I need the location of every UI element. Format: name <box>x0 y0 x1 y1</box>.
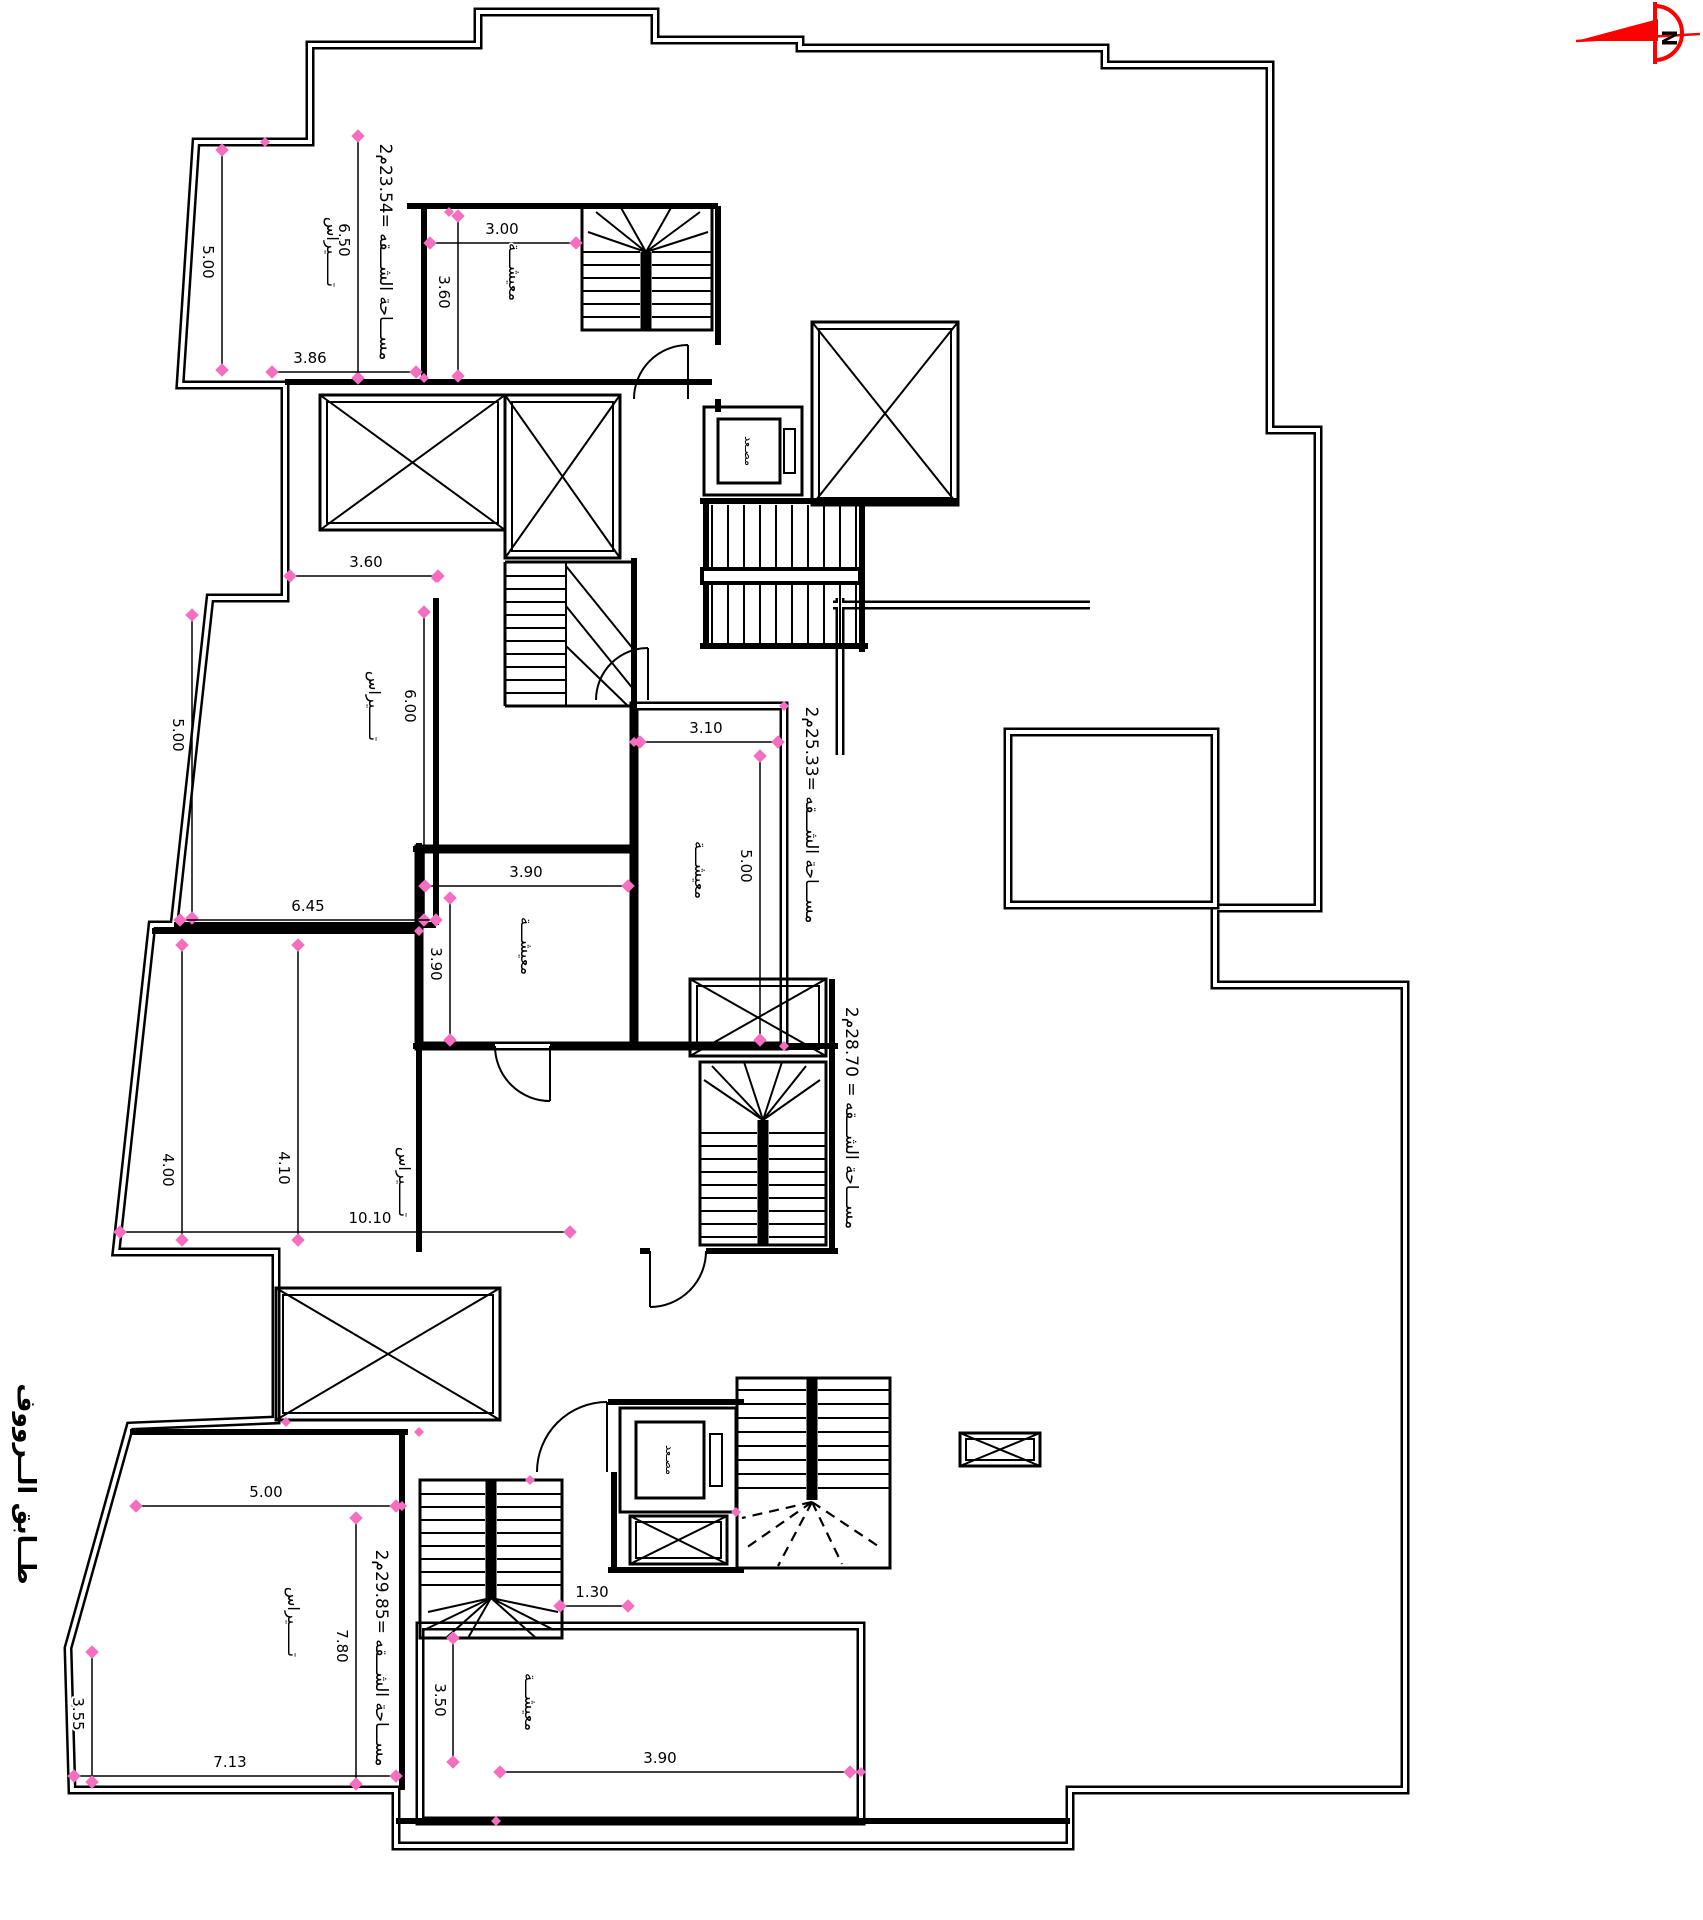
elevator-label: مصـعد <box>742 436 755 466</box>
shaft-box <box>960 1433 1040 1466</box>
terrace-label: تــــــيراس <box>394 1147 414 1217</box>
dimension-label: 5.00 <box>737 849 755 882</box>
area-label: مســـاحة الشـــقه =29.85م2 <box>371 1550 391 1767</box>
dimension-label: 6.00 <box>401 689 419 722</box>
interior-walls <box>130 206 1070 1821</box>
north-arrow-icon: N <box>1576 2 1700 64</box>
shaft-box <box>320 395 505 530</box>
shaft-box <box>276 1288 500 1420</box>
dimension-labels: 5.00 6.50 3.86 3.00 3.60 3.60 6.00 5.00 … <box>69 220 755 1771</box>
elevator-top: مصـعد <box>704 407 802 495</box>
floor-title: طــابق الــرووف <box>11 1383 41 1584</box>
dimension-label: 3.90 <box>509 863 542 881</box>
area-label: مســـاحة الشـــقه =23.54م2 <box>375 144 395 361</box>
dimension-label: 3.90 <box>643 1749 676 1767</box>
dimension-label: 4.10 <box>275 1151 293 1184</box>
living-label: معيشـــة <box>517 917 536 975</box>
dimension-label: 1.30 <box>575 1583 608 1601</box>
dimension-label: 3.10 <box>689 719 722 737</box>
area-label: مســـاحة الشـــقه = 28.70م2 <box>841 1007 861 1229</box>
dimension-label: 7.80 <box>333 1629 351 1662</box>
shaft-box <box>812 322 958 505</box>
floor-plan-canvas: مصـعد مصـعد <box>0 0 1703 1920</box>
north-letter: N <box>1657 30 1681 47</box>
dimension-label: 6.45 <box>291 897 324 915</box>
area-label: مســـاحة الشـــقه =25.33م2 <box>801 707 821 924</box>
terrace-label: تــــــيراس <box>283 1587 303 1657</box>
stair-middle-switchback <box>505 562 634 706</box>
terrace-label: تــــــيراس <box>364 671 384 741</box>
dimension-label: 3.90 <box>427 947 445 980</box>
dimension-label: 3.86 <box>293 349 326 367</box>
room-walls <box>419 706 861 1821</box>
living-label: معيشـــة <box>691 841 710 899</box>
shaft-box <box>630 1516 727 1564</box>
terrace-label: تــــــيراس <box>322 217 342 287</box>
living-label: معيشـــة <box>521 1673 540 1731</box>
dimension-label: 5.00 <box>169 718 187 751</box>
shaft-box <box>505 395 620 558</box>
dimension-label: 3.00 <box>485 220 518 238</box>
dimension-label: 7.13 <box>213 1753 246 1771</box>
roof-opening-courtyard <box>1008 732 1215 905</box>
dimension-label: 3.60 <box>435 275 453 308</box>
stair-bottom-core-dashed <box>737 1378 890 1568</box>
dimension-label: 3.55 <box>69 1697 87 1730</box>
stair-top-apartment <box>582 206 712 330</box>
elevator-bottom: مصـعد <box>620 1408 736 1512</box>
elevator-label: مصـعد <box>663 1445 676 1475</box>
shaft-boxes <box>276 322 1040 1564</box>
dimension-label: 3.50 <box>431 1683 449 1716</box>
dimension-label: 4.00 <box>159 1153 177 1186</box>
dimension-label: 10.10 <box>349 1209 392 1227</box>
living-label: معيشـــة <box>505 243 524 301</box>
dimension-label: 3.60 <box>349 553 382 571</box>
dimension-label: 5.00 <box>199 245 217 278</box>
stair-bottom-apartment <box>420 1480 562 1638</box>
dimension-label: 5.00 <box>249 1483 282 1501</box>
stair-third-apartment <box>700 1062 826 1245</box>
door-arcs <box>495 345 706 1472</box>
floor-plan-page: مصـعد مصـعد <box>0 0 1703 1920</box>
